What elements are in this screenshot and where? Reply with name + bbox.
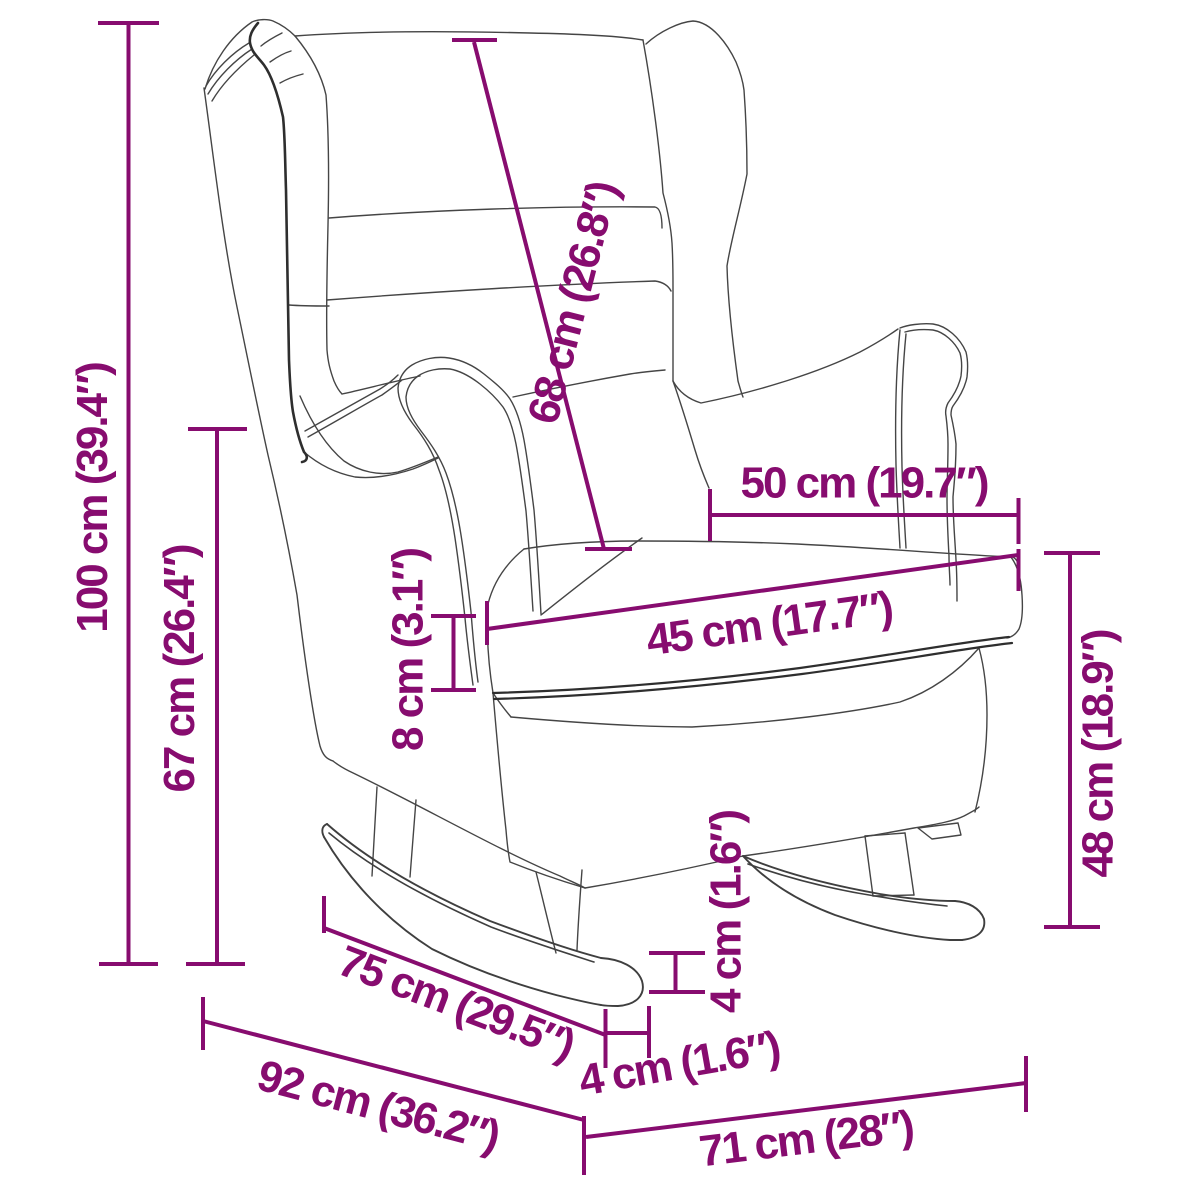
svg-text:100 cm (39.4″): 100 cm (39.4″)	[68, 363, 117, 633]
svg-text:8 cm (3.1″): 8 cm (3.1″)	[384, 549, 433, 751]
svg-text:48 cm (18.9″): 48 cm (18.9″)	[1074, 630, 1123, 877]
svg-text:67 cm (26.4″): 67 cm (26.4″)	[155, 545, 204, 792]
svg-text:4 cm (1.6″): 4 cm (1.6″)	[702, 811, 751, 1013]
svg-text:50 cm (19.7″): 50 cm (19.7″)	[740, 459, 987, 508]
